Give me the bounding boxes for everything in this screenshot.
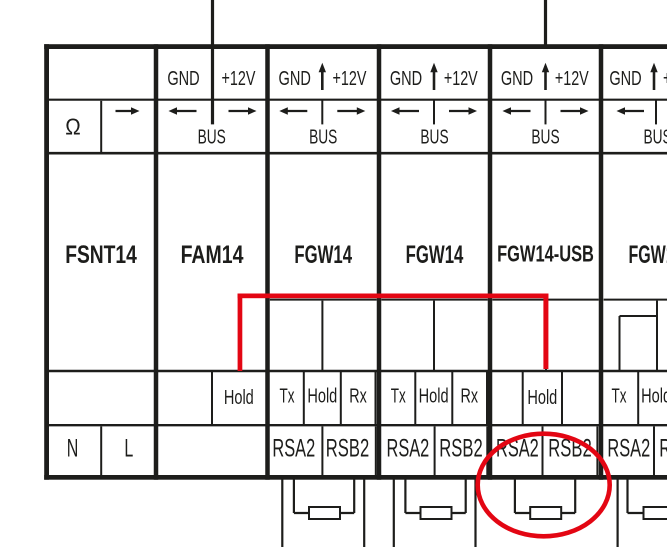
svg-text:FGW14-USB: FGW14-USB <box>497 242 594 267</box>
svg-text:Tx: Tx <box>391 384 406 408</box>
svg-text:Hold: Hold <box>419 384 449 407</box>
svg-text:Hold: Hold <box>224 386 254 409</box>
svg-text:FGW14: FGW14 <box>294 241 352 269</box>
svg-text:Rx: Rx <box>349 384 367 407</box>
svg-text:BUS: BUS <box>643 125 667 148</box>
svg-text:Hold: Hold <box>527 386 557 409</box>
svg-text:+12V: +12V <box>555 66 589 89</box>
svg-text:Tx: Tx <box>279 384 294 408</box>
svg-text:FAM14: FAM14 <box>181 241 244 269</box>
svg-text:Rx: Rx <box>461 384 479 407</box>
svg-text:RSB2: RSB2 <box>659 435 667 462</box>
svg-text:BUS: BUS <box>531 125 559 148</box>
svg-text:N: N <box>67 435 79 462</box>
svg-text:GND: GND <box>609 67 641 90</box>
svg-text:+12V: +12V <box>663 66 667 89</box>
svg-text:GND: GND <box>501 67 533 90</box>
svg-text:+12V: +12V <box>333 66 367 89</box>
svg-text:GND: GND <box>167 67 199 90</box>
svg-text:Ω: Ω <box>65 114 80 140</box>
svg-text:FSNT14: FSNT14 <box>65 241 137 269</box>
svg-text:GND: GND <box>279 67 311 90</box>
svg-text:Hold: Hold <box>641 384 667 407</box>
svg-text:L: L <box>124 435 133 462</box>
svg-text:BUS: BUS <box>420 125 448 148</box>
svg-text:FGW14: FGW14 <box>406 241 464 269</box>
svg-text:RSB2: RSB2 <box>439 435 482 462</box>
svg-text:Hold: Hold <box>307 384 337 407</box>
svg-text:RSA2: RSA2 <box>607 435 650 462</box>
svg-text:GND: GND <box>390 67 422 90</box>
svg-text:BUS: BUS <box>198 125 226 148</box>
svg-text:RSB2: RSB2 <box>326 435 369 462</box>
svg-text:BUS: BUS <box>309 125 337 148</box>
svg-text:Tx: Tx <box>611 384 626 408</box>
svg-text:FGW14: FGW14 <box>628 242 667 269</box>
svg-text:RSA2: RSA2 <box>272 435 315 462</box>
svg-text:+12V: +12V <box>444 66 478 89</box>
svg-text:+12V: +12V <box>222 66 256 89</box>
svg-text:RSA2: RSA2 <box>387 435 430 462</box>
